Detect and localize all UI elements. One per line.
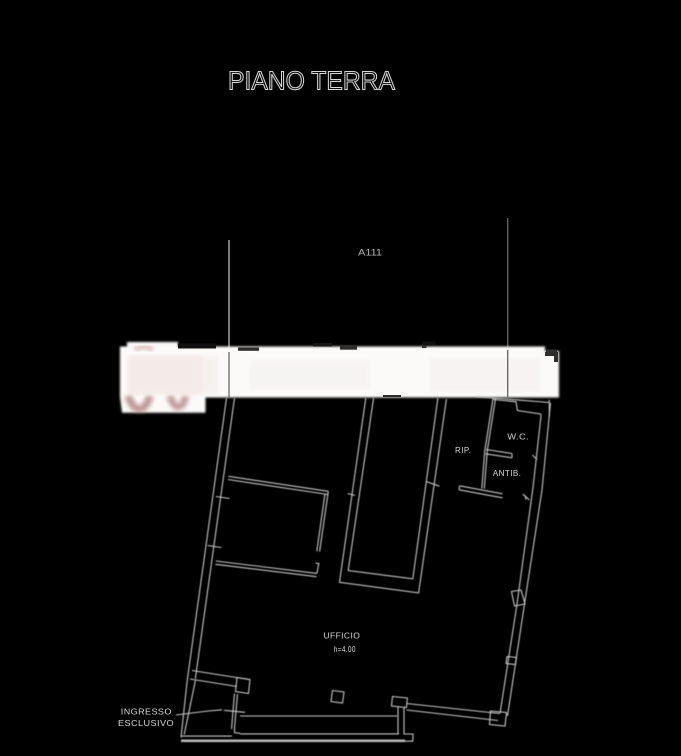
svg-text:ANTIB.: ANTIB. <box>493 468 522 478</box>
svg-text:PIANO TERRA: PIANO TERRA <box>228 68 395 96</box>
svg-text:W.C.: W.C. <box>507 432 529 442</box>
svg-text:ESCLUSIVO: ESCLUSIVO <box>118 718 174 728</box>
svg-text:RIP.: RIP. <box>455 445 471 455</box>
svg-text:INGRESSO: INGRESSO <box>121 706 172 716</box>
svg-text:UFFICIO: UFFICIO <box>324 631 361 641</box>
svg-text:h=4.00: h=4.00 <box>334 644 356 654</box>
svg-text:A111: A111 <box>358 248 382 259</box>
